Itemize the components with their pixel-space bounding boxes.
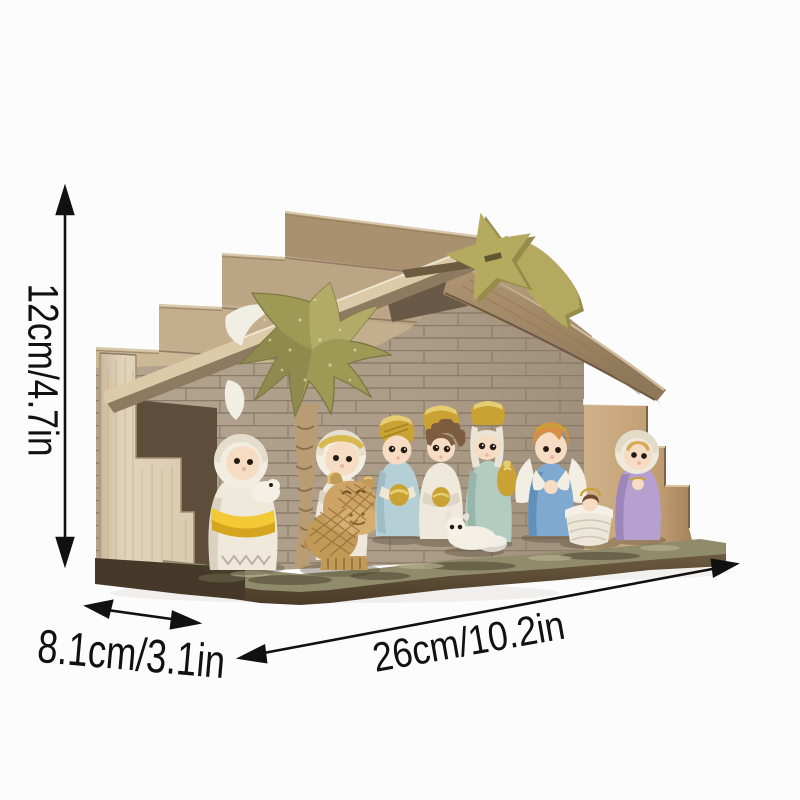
svg-text:12cm/4.7in: 12cm/4.7in — [19, 284, 67, 457]
svg-text:8.1cm/3.1in: 8.1cm/3.1in — [35, 619, 227, 688]
